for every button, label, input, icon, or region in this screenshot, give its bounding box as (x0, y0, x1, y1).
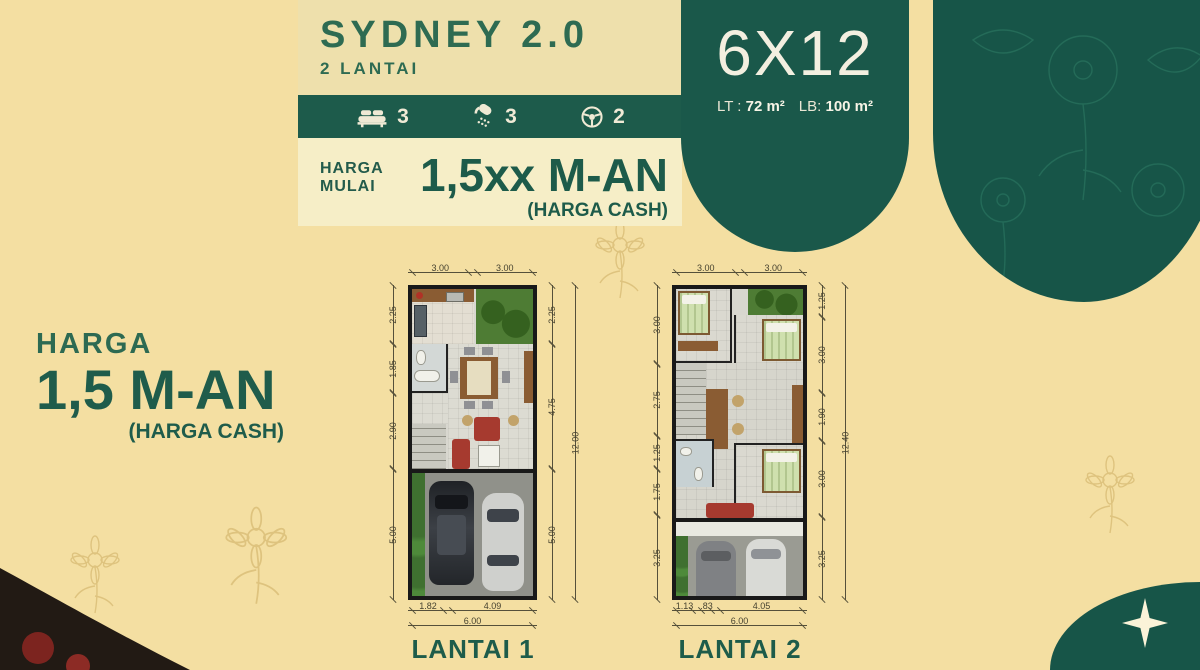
dim-label: .83 (698, 601, 715, 611)
plan2-dims-top: 3.00 3.00 (672, 266, 807, 280)
dim-label: 1.13 (674, 601, 696, 611)
dim-label: 1.25 (817, 292, 827, 310)
dim-label: 6.00 (729, 616, 751, 626)
side-price-value: 1,5 (36, 358, 114, 421)
dim-label: 3.00 (695, 263, 717, 273)
lot-dimensions: 6X12 (716, 18, 873, 88)
page-title: SYDNEY 2.0 (320, 16, 682, 56)
sink (680, 447, 692, 456)
lt-value: 72 m² (746, 98, 785, 115)
car-roof-white (746, 539, 786, 596)
armchair (474, 417, 500, 441)
bed (762, 319, 801, 361)
garden-area (476, 289, 533, 347)
dim-label: 3.00 (817, 346, 827, 364)
dark-corner-decoration (0, 540, 190, 670)
dim-label: 5.00 (388, 526, 398, 544)
feature-garage: 2 (579, 104, 625, 130)
suv-car (429, 481, 474, 585)
dim-label: 12.40 (840, 431, 850, 454)
dining-chair (482, 347, 493, 355)
bed (762, 449, 801, 493)
toilet (416, 350, 426, 365)
dim-label: 3.00 (652, 316, 662, 334)
balcony-strip (676, 522, 803, 537)
lt-label: LT : (717, 98, 741, 115)
dim-label: 6.00 (462, 616, 484, 626)
poster: SYDNEY 2.0 2 LANTAI 3 3 (0, 0, 1200, 670)
bed-icon (355, 105, 389, 129)
dim-label: 2.25 (388, 306, 398, 324)
dim-label: 5.00 (547, 526, 557, 544)
dim-label: 3.00 (494, 263, 516, 273)
side-price-block: HARGA 1,5 M-AN (HARGA CASH) (36, 328, 284, 444)
price-unit: M-AN (548, 149, 668, 201)
dim-label: 1.75 (652, 483, 662, 501)
floorplan-lantai2 (672, 285, 807, 600)
price-label: HARGA MULAI (320, 160, 384, 197)
bathtub (414, 370, 440, 382)
dim-label: 3.25 (817, 550, 827, 568)
car-roof-gray (696, 541, 736, 596)
dim-label: 3.00 (817, 470, 827, 488)
dim-label: 1.85 (388, 360, 398, 378)
lb-label: LB: (799, 98, 822, 115)
side-price-unit: M-AN (129, 358, 275, 421)
dim-label: 1.90 (817, 408, 827, 426)
feature-bathrooms: 3 (471, 104, 517, 130)
wardrobe (792, 385, 803, 443)
dim-label: 2.90 (388, 422, 398, 440)
plan1-dims-bottom-total: 6.00 (408, 619, 537, 633)
carport-plants (676, 536, 688, 596)
floorplan-lantai1 (408, 285, 537, 600)
header-panel: SYDNEY 2.0 2 LANTAI (298, 0, 682, 95)
dim-label: 2.75 (652, 391, 662, 409)
dining-table (460, 357, 498, 399)
page-subtitle: 2 LANTAI (320, 59, 682, 79)
feature-bedrooms: 3 (355, 105, 409, 129)
price-value: 1,5xx (420, 149, 535, 201)
dim-label: 4.75 (547, 398, 557, 416)
dining-chair (482, 401, 493, 409)
coffee-table (478, 445, 500, 467)
dining-chair (464, 401, 475, 409)
garage-count: 2 (613, 105, 625, 129)
kitchen-area (412, 289, 474, 344)
plan2-dims-right: 1.25 3.00 1.90 3.00 3.25 (815, 285, 829, 600)
plan2-label: LANTAI 2 (655, 634, 825, 665)
size-badge: 6X12 LT : 72 m² LB: 100 m² (681, 0, 909, 252)
steering-wheel-icon (579, 104, 605, 130)
plan2-dims-right-total: 12.40 (838, 285, 852, 600)
dining-chair (502, 371, 510, 383)
plan1-dims-right: 2.25 4.75 5.00 (545, 285, 559, 600)
plan1-dims-left: 2.25 1.85 2.90 5.00 (386, 285, 400, 600)
sofa (706, 503, 754, 518)
side-price-label: HARGA (36, 328, 284, 361)
carport-plants (412, 473, 425, 596)
side-price-note: (HARGA CASH) (36, 420, 284, 444)
plan2-dims-left: 3.00 2.75 1.25 1.75 3.25 (650, 285, 664, 600)
dim-label: 2.25 (547, 306, 557, 324)
shower-icon (471, 104, 497, 130)
bedroom-count: 3 (397, 105, 409, 129)
stairs (676, 363, 706, 435)
bed (678, 291, 710, 335)
desk-chair (732, 423, 744, 435)
dim-label: 1.25 (652, 444, 662, 462)
plan1-label: LANTAI 1 (388, 634, 558, 665)
dim-label: 3.00 (762, 263, 784, 273)
dim-label: 3.00 (429, 263, 451, 273)
price-value-block: 1,5xx M-AN (HARGA CASH) (398, 152, 668, 222)
lb-value: 100 m² (825, 98, 873, 115)
area-sizes: LT : 72 m² LB: 100 m² (717, 98, 873, 115)
price-note: (HARGA CASH) (398, 200, 668, 222)
toilet (694, 467, 703, 481)
sedan-car (482, 493, 524, 591)
dining-chair (450, 371, 458, 383)
hall-floor (412, 393, 448, 424)
plan2-dims-bottom-total: 6.00 (672, 619, 807, 633)
dim-label: 4.09 (482, 601, 504, 611)
desk-chair (732, 395, 744, 407)
dim-label: 4.05 (751, 601, 773, 611)
fridge (414, 305, 427, 337)
feature-bar: 3 3 2 (298, 95, 682, 138)
bathroom-count: 3 (505, 105, 517, 129)
dim-label: 3.25 (652, 549, 662, 567)
plan1-dims-top: 3.00 3.00 (408, 266, 537, 280)
bathroom-area (676, 439, 714, 487)
green-corner-decoration (1050, 582, 1200, 670)
price-panel: HARGA MULAI 1,5xx M-AN (HARGA CASH) (298, 138, 682, 226)
dim-label: 12.00 (570, 431, 580, 454)
green-blob-decoration (933, 0, 1200, 302)
dim-label: 1.82 (417, 601, 439, 611)
cabinet (524, 351, 533, 403)
bedroom-1 (676, 289, 732, 363)
plan1-dims-right-total: 12.00 (568, 285, 582, 600)
dining-chair (464, 347, 475, 355)
wardrobe (678, 341, 718, 351)
pouf (508, 415, 519, 426)
pouf (462, 415, 473, 426)
stairs (412, 424, 446, 469)
sofa (452, 439, 470, 469)
roof-garden (748, 289, 803, 315)
bathroom-area (412, 344, 448, 393)
